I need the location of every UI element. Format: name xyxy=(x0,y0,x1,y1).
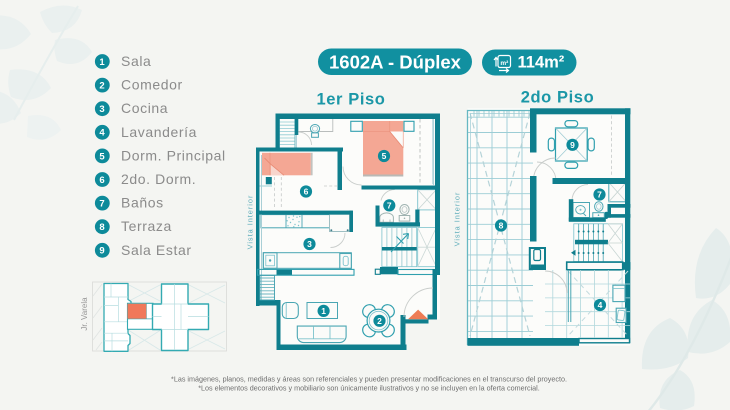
svg-text:2do. Dorm.: 2do. Dorm. xyxy=(121,171,196,187)
svg-text:1602A - Dúplex: 1602A - Dúplex xyxy=(329,52,462,73)
svg-text:Jr. Varela: Jr. Varela xyxy=(80,297,89,331)
svg-text:114m²: 114m² xyxy=(518,54,565,72)
svg-text:Lavandería: Lavandería xyxy=(121,124,197,140)
svg-text:Terraza: Terraza xyxy=(121,218,172,234)
svg-text:Cocina: Cocina xyxy=(121,100,168,116)
svg-text:Baños: Baños xyxy=(121,195,164,211)
svg-text:5: 5 xyxy=(99,151,105,162)
svg-text:7: 7 xyxy=(597,190,602,200)
svg-text:8: 8 xyxy=(99,222,105,233)
svg-text:9: 9 xyxy=(570,140,575,150)
svg-text:*Las imágenes, planos, medidas: *Las imágenes, planos, medidas y áreas s… xyxy=(171,375,567,384)
svg-text:2: 2 xyxy=(377,316,382,326)
svg-text:2do Piso: 2do Piso xyxy=(521,89,595,107)
svg-text:5: 5 xyxy=(382,151,387,161)
svg-text:9: 9 xyxy=(99,246,105,257)
svg-text:Comedor: Comedor xyxy=(121,77,183,93)
svg-text:3: 3 xyxy=(307,239,312,249)
svg-text:Sala Estar: Sala Estar xyxy=(121,242,192,258)
svg-text:m²: m² xyxy=(500,60,509,67)
svg-text:3: 3 xyxy=(99,104,105,115)
svg-text:4: 4 xyxy=(99,128,105,139)
svg-text:*Los elementos decorativos y m: *Los elementos decorativos y mobiliario … xyxy=(198,384,540,393)
svg-text:8: 8 xyxy=(499,221,504,231)
svg-text:1: 1 xyxy=(99,57,105,68)
svg-text:6: 6 xyxy=(304,187,309,197)
svg-text:6: 6 xyxy=(99,175,105,186)
svg-text:1: 1 xyxy=(321,306,326,316)
svg-text:Vista Interior: Vista Interior xyxy=(246,195,255,250)
svg-text:4: 4 xyxy=(598,300,603,310)
svg-text:Vista Interior: Vista Interior xyxy=(453,192,462,247)
svg-text:Dorm. Principal: Dorm. Principal xyxy=(121,147,226,163)
svg-text:2: 2 xyxy=(99,81,105,92)
svg-text:7: 7 xyxy=(387,200,392,210)
svg-text:Sala: Sala xyxy=(121,53,151,69)
svg-text:7: 7 xyxy=(99,199,105,210)
svg-text:1er Piso: 1er Piso xyxy=(316,91,385,109)
